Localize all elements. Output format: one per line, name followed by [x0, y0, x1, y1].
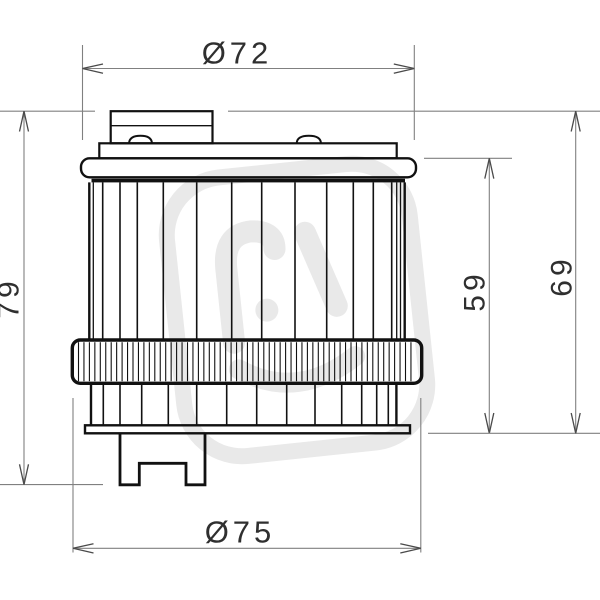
plate-bump-right	[297, 136, 321, 144]
dimension-body-height: 59	[424, 158, 512, 433]
lower-body-pleat-lines	[103, 383, 388, 425]
dimension-top-diameter: Ø72	[83, 36, 415, 141]
technical-drawing-canvas: Ø72 Ø75 79 59	[0, 0, 600, 600]
dim-label-overall-height: 79	[0, 277, 26, 318]
dim-label-top-diameter: Ø72	[202, 36, 273, 71]
bottom-plate	[85, 425, 410, 433]
main-body-pleat-lines	[103, 182, 392, 340]
body-top-seam	[92, 179, 406, 183]
dimension-overall-height: 79	[0, 111, 103, 484]
lower-body-edges	[91, 383, 396, 425]
top-tab	[111, 111, 213, 143]
dim-label-body-height: 59	[459, 270, 492, 311]
dim-label-bottom-diameter: Ø75	[205, 515, 276, 550]
dimension-bottom-diameter: Ø75	[73, 398, 421, 553]
plate-bump-left	[129, 136, 152, 144]
drawing-sheet: Ø72 Ø75 79 59	[0, 0, 600, 600]
dim-label-cap-to-base-height: 69	[546, 255, 579, 296]
